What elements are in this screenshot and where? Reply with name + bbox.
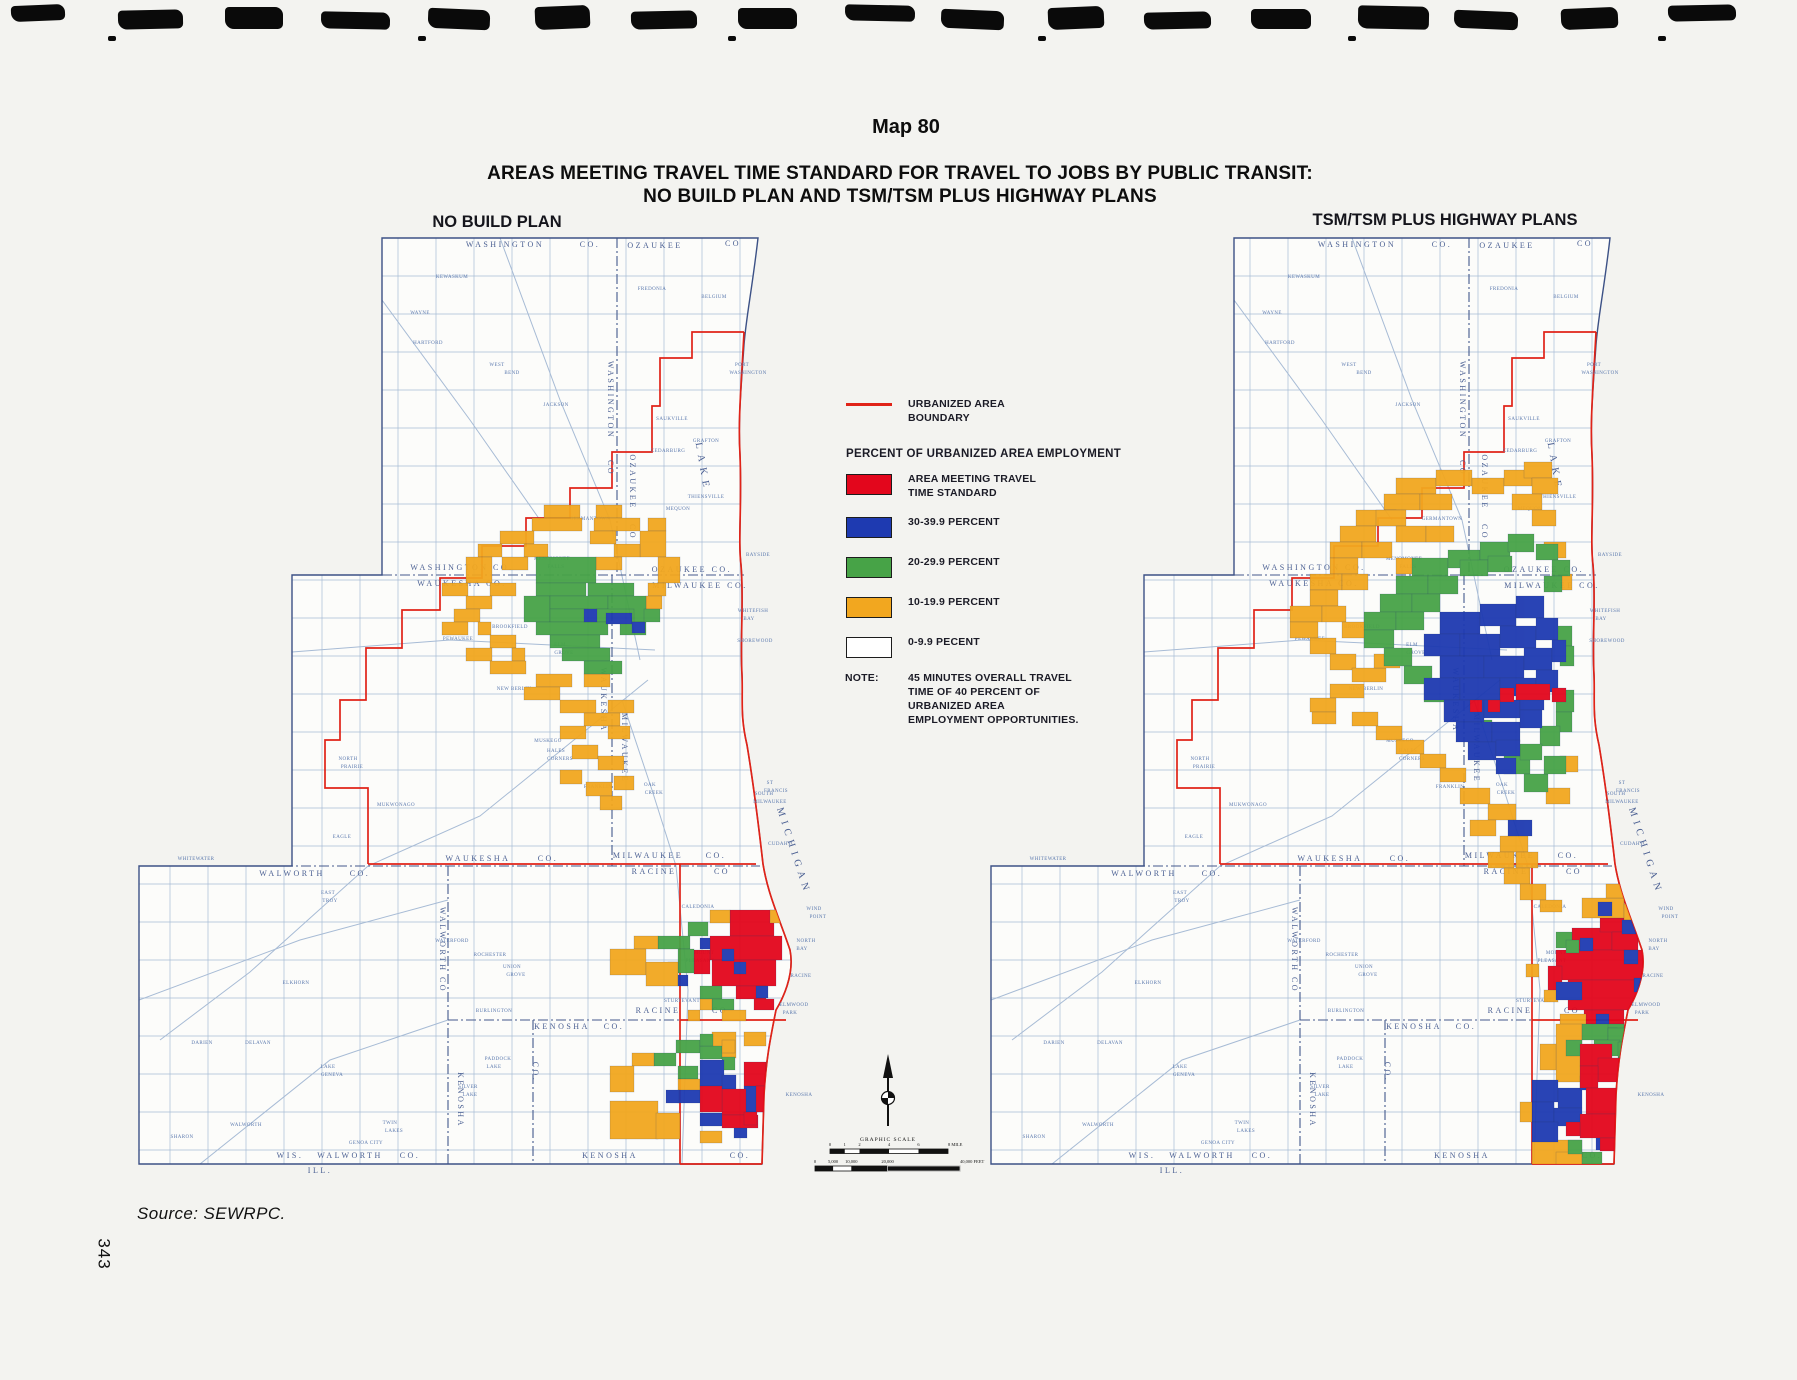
town-label: LAKES	[1237, 1129, 1255, 1134]
county-label: ILL.	[1160, 1166, 1184, 1175]
county-label: CO.	[531, 1062, 540, 1083]
county-label: WASHINGTON	[1318, 240, 1396, 249]
town-label: FREDONIA	[1490, 287, 1518, 292]
maps-canvas: WASHINGTONCO.OZAUKEECOWASHINGTONCOOZAUKE…	[0, 0, 1797, 1380]
scale-mile-label: 2	[858, 1142, 860, 1147]
legend-item-label: TIME STANDARD	[908, 486, 997, 500]
county-label: CO	[1566, 867, 1582, 876]
county-label: KENOSHA	[456, 1072, 465, 1128]
town-label: RACINE	[1642, 974, 1663, 979]
town-label: GROVE	[506, 973, 525, 978]
town-label: WIND	[1658, 907, 1673, 912]
scale-feet-label: 0	[814, 1159, 817, 1164]
town-label: MUSKEGO	[534, 739, 562, 744]
county-label: CO	[606, 460, 615, 476]
scale-feet-label: 20,000	[881, 1159, 894, 1165]
town-label: PARK	[783, 1011, 797, 1016]
town-label: JACKSON	[543, 403, 568, 408]
town-label: PEWAUKEE	[443, 637, 473, 642]
town-label: CALEDONIA	[682, 905, 715, 910]
town-label: TWIN	[1235, 1121, 1250, 1126]
county-label: CO.	[1432, 240, 1453, 249]
town-label: GRAFTON	[1545, 439, 1571, 444]
town-label: DELAVAN	[245, 1041, 271, 1046]
town-label: ST	[1619, 781, 1626, 786]
legend-item-label: 20-29.9 PERCENT	[908, 555, 1000, 569]
town-label: CREEK	[1497, 791, 1515, 796]
town-label: OAK	[644, 783, 656, 788]
town-label: WALWORTH	[1082, 1123, 1114, 1128]
county-label: CO.	[580, 240, 601, 249]
town-label: MEQUON	[666, 507, 690, 512]
town-label: SILVER	[458, 1085, 478, 1090]
town-label: GENOA CITY	[1201, 1141, 1235, 1146]
town-label: GERMANTOWN	[1422, 517, 1463, 522]
county-label: KENOSHA	[582, 1151, 638, 1160]
town-label: ELKHORN	[1135, 981, 1162, 986]
town-label: BAY	[1595, 617, 1606, 622]
town-label: EAST	[321, 891, 335, 896]
town-label: ELMWOOD	[1632, 1003, 1661, 1008]
town-label: LAKE	[1315, 1093, 1330, 1098]
town-label: WHITEWATER	[178, 857, 215, 862]
town-label: KEWASKUM	[436, 275, 468, 280]
county-label: OZAUKEE	[628, 454, 637, 509]
town-label: MUKWONAGO	[1229, 803, 1267, 808]
county-label: WASHINGTON CO.	[410, 563, 513, 572]
town-label: STURTEVANT	[664, 999, 700, 1004]
town-label: PRAIRIE	[1193, 765, 1215, 770]
county-label: CO.	[1202, 869, 1223, 878]
town-label: MILWAUKEE	[1605, 800, 1639, 805]
town-label: LAKE	[463, 1093, 478, 1098]
town-label: ROCHESTER	[474, 953, 507, 958]
town-label: KEWASKUM	[1288, 275, 1320, 280]
page-number: 343	[94, 1238, 114, 1269]
town-label: PORT	[1587, 363, 1601, 368]
county-label: CO	[1480, 524, 1489, 540]
town-label: TROY	[1174, 899, 1189, 904]
town-label: CEDARBURG	[1503, 449, 1537, 454]
town-label: WASHINGTON	[729, 371, 766, 376]
county-label: CO	[1577, 239, 1593, 248]
scale-feet-label: 5,000	[828, 1159, 839, 1165]
town-label: BURLINGTON	[1328, 1009, 1364, 1014]
town-label: SHOREWOOD	[1589, 639, 1625, 644]
urbanized-boundary-label-line2: BOUNDARY	[908, 411, 970, 425]
town-label: PORT	[735, 363, 749, 368]
town-label: NORTH	[1191, 757, 1210, 762]
county-label: CO	[725, 239, 741, 248]
legend-item-label: 10-19.9 PERCENT	[908, 595, 1000, 609]
town-label: SAUKVILLE	[656, 417, 688, 422]
town-label: THIENSVILLE	[688, 495, 725, 500]
town-label: ROCHESTER	[1326, 953, 1359, 958]
town-label: WATERFORD	[435, 939, 469, 944]
legend-item-label: AREA MEETING TRAVEL	[908, 472, 1036, 486]
town-label: FRANCIS	[764, 789, 788, 794]
legend-item-label: 30-39.9 PERCENT	[908, 515, 1000, 529]
scale-bar: GRAPHIC SCALE012468 MILE05,00010,00020,0…	[814, 1054, 985, 1171]
scale-mile-label: 0	[829, 1142, 832, 1147]
town-label: WALWORTH	[230, 1123, 262, 1128]
town-label: NORTH	[797, 939, 816, 944]
town-label: WHITEWATER	[1030, 857, 1067, 862]
town-label: ST	[767, 781, 774, 786]
town-label: KENOSHA	[786, 1093, 813, 1098]
town-label: BURLINGTON	[476, 1009, 512, 1014]
town-label: WHITEFISH	[1590, 609, 1621, 614]
county-label: MICHIGAN	[1626, 806, 1665, 896]
legend-item-label: 0-9.9 PECENT	[908, 635, 980, 649]
town-label: PARK	[1635, 1011, 1649, 1016]
county-label: CO.	[730, 1151, 751, 1160]
town-label: LAKE	[1173, 1065, 1188, 1070]
town-label: RACINE	[790, 974, 811, 979]
town-label: MUKWONAGO	[377, 803, 415, 808]
town-label: HARTFORD	[413, 341, 443, 346]
county-label: WASHINGTON	[606, 361, 615, 439]
county-label: WALWORTH	[259, 869, 325, 878]
town-label: NORTH	[1649, 939, 1668, 944]
town-label: CEDARBURG	[651, 449, 685, 454]
scale-feet-label: 10,000	[845, 1159, 858, 1165]
town-label: BEND	[1356, 371, 1371, 376]
town-label: BAY	[796, 947, 807, 952]
county-label: WAUKESHA	[1298, 854, 1363, 863]
town-label: KENOSHA	[1638, 1093, 1665, 1098]
town-label: DARIEN	[1043, 1041, 1064, 1046]
town-label: ELMWOOD	[780, 1003, 809, 1008]
county-label: CO.	[400, 1151, 421, 1160]
town-label: OAK	[1496, 783, 1508, 788]
scanned-page: Map 80 AREAS MEETING TRAVEL TIME STANDAR…	[0, 0, 1797, 1380]
town-label: PRAIRIE	[341, 765, 363, 770]
town-label: GENEVA	[321, 1073, 343, 1078]
town-label: BELGIUM	[701, 295, 727, 300]
town-label: LAKES	[385, 1129, 403, 1134]
scale-feet-label: 40,000 FEET	[960, 1159, 985, 1165]
county-label: CO.	[1383, 1062, 1392, 1083]
town-label: SAUKVILLE	[1508, 417, 1540, 422]
county-label: RACINE	[1488, 1006, 1533, 1015]
town-label: WEST	[1341, 363, 1356, 368]
county-label: CO.	[1456, 1022, 1477, 1031]
map-tsm-highway-plans: WASHINGTONCO.OZAUKEECOWASHINGTONCOOZAUKE…	[991, 238, 1678, 1175]
county-label: RACINE	[636, 1006, 681, 1015]
county-label: OZAUKEE	[1479, 241, 1534, 250]
county-label: CO	[714, 867, 730, 876]
town-label: PADDOCK	[1337, 1057, 1364, 1062]
town-label: TROY	[322, 899, 337, 904]
map-no-build-plan: WASHINGTONCO.OZAUKEECOWASHINGTONCOOZAUKE…	[139, 238, 826, 1175]
town-label: BAYSIDE	[1598, 553, 1622, 558]
town-label: FRANCIS	[1616, 789, 1640, 794]
county-label: WALWORTH CO	[1290, 907, 1299, 993]
town-label: WAYNE	[1262, 311, 1282, 316]
town-label: TWIN	[383, 1121, 398, 1126]
town-label: WASHINGTON	[1581, 371, 1618, 376]
town-label: THIENSVILLE	[1540, 495, 1577, 500]
town-label: LAKE	[487, 1065, 502, 1070]
town-label: UNION	[503, 965, 521, 970]
town-label: SHOREWOOD	[737, 639, 773, 644]
town-label: WAYNE	[410, 311, 430, 316]
town-label: GENEVA	[1173, 1073, 1195, 1078]
county-label: CO.	[538, 854, 559, 863]
county-label: KENOSHA	[1434, 1151, 1490, 1160]
town-label: GROVE	[1358, 973, 1377, 978]
town-label: CORNERS	[547, 757, 573, 762]
town-label: SHARON	[1023, 1135, 1046, 1140]
town-label: HARTFORD	[1265, 341, 1295, 346]
town-label: SILVER	[1310, 1085, 1330, 1090]
note-text-line: 45 MINUTES OVERALL TRAVEL	[908, 671, 1072, 685]
county-label: CO.	[1252, 1151, 1273, 1160]
county-label: CO.	[1390, 854, 1411, 863]
town-label: WATERFORD	[1287, 939, 1321, 944]
county-label: CO.	[706, 851, 727, 860]
note-label: NOTE:	[845, 671, 879, 685]
town-label: CUDAHY	[1620, 842, 1644, 847]
legend-swatch-4	[846, 637, 892, 658]
county-label: KENOSHA	[1386, 1022, 1442, 1031]
town-label: BAYSIDE	[746, 553, 770, 558]
town-label: DARIEN	[191, 1041, 212, 1046]
scale-mile-label: 6	[917, 1142, 920, 1147]
county-label: CO.	[604, 1022, 625, 1031]
town-label: WIND	[806, 907, 821, 912]
town-label: BEND	[504, 371, 519, 376]
legend-swatch-1	[846, 517, 892, 538]
town-label: BAY	[743, 617, 754, 622]
county-label: MICHIGAN	[774, 806, 813, 896]
county-label: WALWORTH	[1111, 869, 1177, 878]
town-label: WEST	[489, 363, 504, 368]
town-label: HALES	[547, 749, 565, 754]
legend-swatch-0	[846, 474, 892, 495]
town-label: EAGLE	[333, 835, 351, 840]
county-label: WAUKESHA	[446, 854, 511, 863]
town-label: EAGLE	[1185, 835, 1203, 840]
town-label: CUDAHY	[768, 842, 792, 847]
source-caption: Source: SEWRPC.	[137, 1204, 286, 1224]
county-label: WASHINGTON	[1458, 361, 1467, 439]
town-label: JACKSON	[1395, 403, 1420, 408]
county-label: KENOSHA	[1308, 1072, 1317, 1128]
town-label: WHITEFISH	[738, 609, 769, 614]
scale-mile-label: 8 MILE	[948, 1142, 963, 1147]
town-label: BAY	[1648, 947, 1659, 952]
urbanized-area-boundary-line-sample	[846, 403, 892, 406]
town-label: MILWAUKEE	[753, 800, 787, 805]
legend-swatch-3	[846, 597, 892, 618]
town-label: DELAVAN	[1097, 1041, 1123, 1046]
urbanized-boundary-label-line1: URBANIZED AREA	[908, 397, 1005, 411]
county-label: WIS.	[277, 1151, 304, 1160]
county-label: WALWORTH	[1169, 1151, 1235, 1160]
county-label: RACINE	[632, 867, 677, 876]
county-label: WASHINGTON	[466, 240, 544, 249]
town-label: GENOA CITY	[349, 1141, 383, 1146]
town-label: ELKHORN	[283, 981, 310, 986]
town-label: BELGIUM	[1553, 295, 1579, 300]
county-label: CO.	[350, 869, 371, 878]
county-label: WALWORTH CO	[438, 907, 447, 993]
county-label: OZAUKEE CO.	[1504, 565, 1584, 574]
county-label: OZAUKEE	[627, 241, 682, 250]
town-label: FREDONIA	[638, 287, 666, 292]
county-label: ILL.	[308, 1166, 332, 1175]
legend-heading: PERCENT OF URBANIZED AREA EMPLOYMENT	[846, 448, 1121, 460]
town-label: NORTH	[339, 757, 358, 762]
town-label: EAST	[1173, 891, 1187, 896]
town-label: LAKE	[321, 1065, 336, 1070]
county-label: KENOSHA	[534, 1022, 590, 1031]
county-label: WALWORTH	[317, 1151, 383, 1160]
town-label: UNION	[1355, 965, 1373, 970]
town-label: SHARON	[171, 1135, 194, 1140]
town-label: GRAFTON	[693, 439, 719, 444]
note-text-line: EMPLOYMENT OPPORTUNITIES.	[908, 713, 1079, 727]
county-label: MILWAUKEE	[613, 851, 683, 860]
county-label: MILWAUKEE	[620, 713, 629, 783]
town-label: ELM	[1406, 643, 1418, 648]
town-label: CREEK	[645, 791, 663, 796]
legend-swatch-2	[846, 557, 892, 578]
county-label: WIS.	[1129, 1151, 1156, 1160]
note-text-line: URBANIZED AREA	[908, 699, 1005, 713]
scale-mile-label: 1	[844, 1142, 846, 1147]
town-label: LAKE	[1339, 1065, 1354, 1070]
town-label: POINT	[810, 915, 827, 920]
town-label: BROOKFIELD	[492, 625, 528, 630]
town-label: POINT	[1662, 915, 1679, 920]
county-label: CO.	[1558, 851, 1579, 860]
town-label: PADDOCK	[485, 1057, 512, 1062]
note-text-line: TIME OF 40 PERCENT OF	[908, 685, 1040, 699]
